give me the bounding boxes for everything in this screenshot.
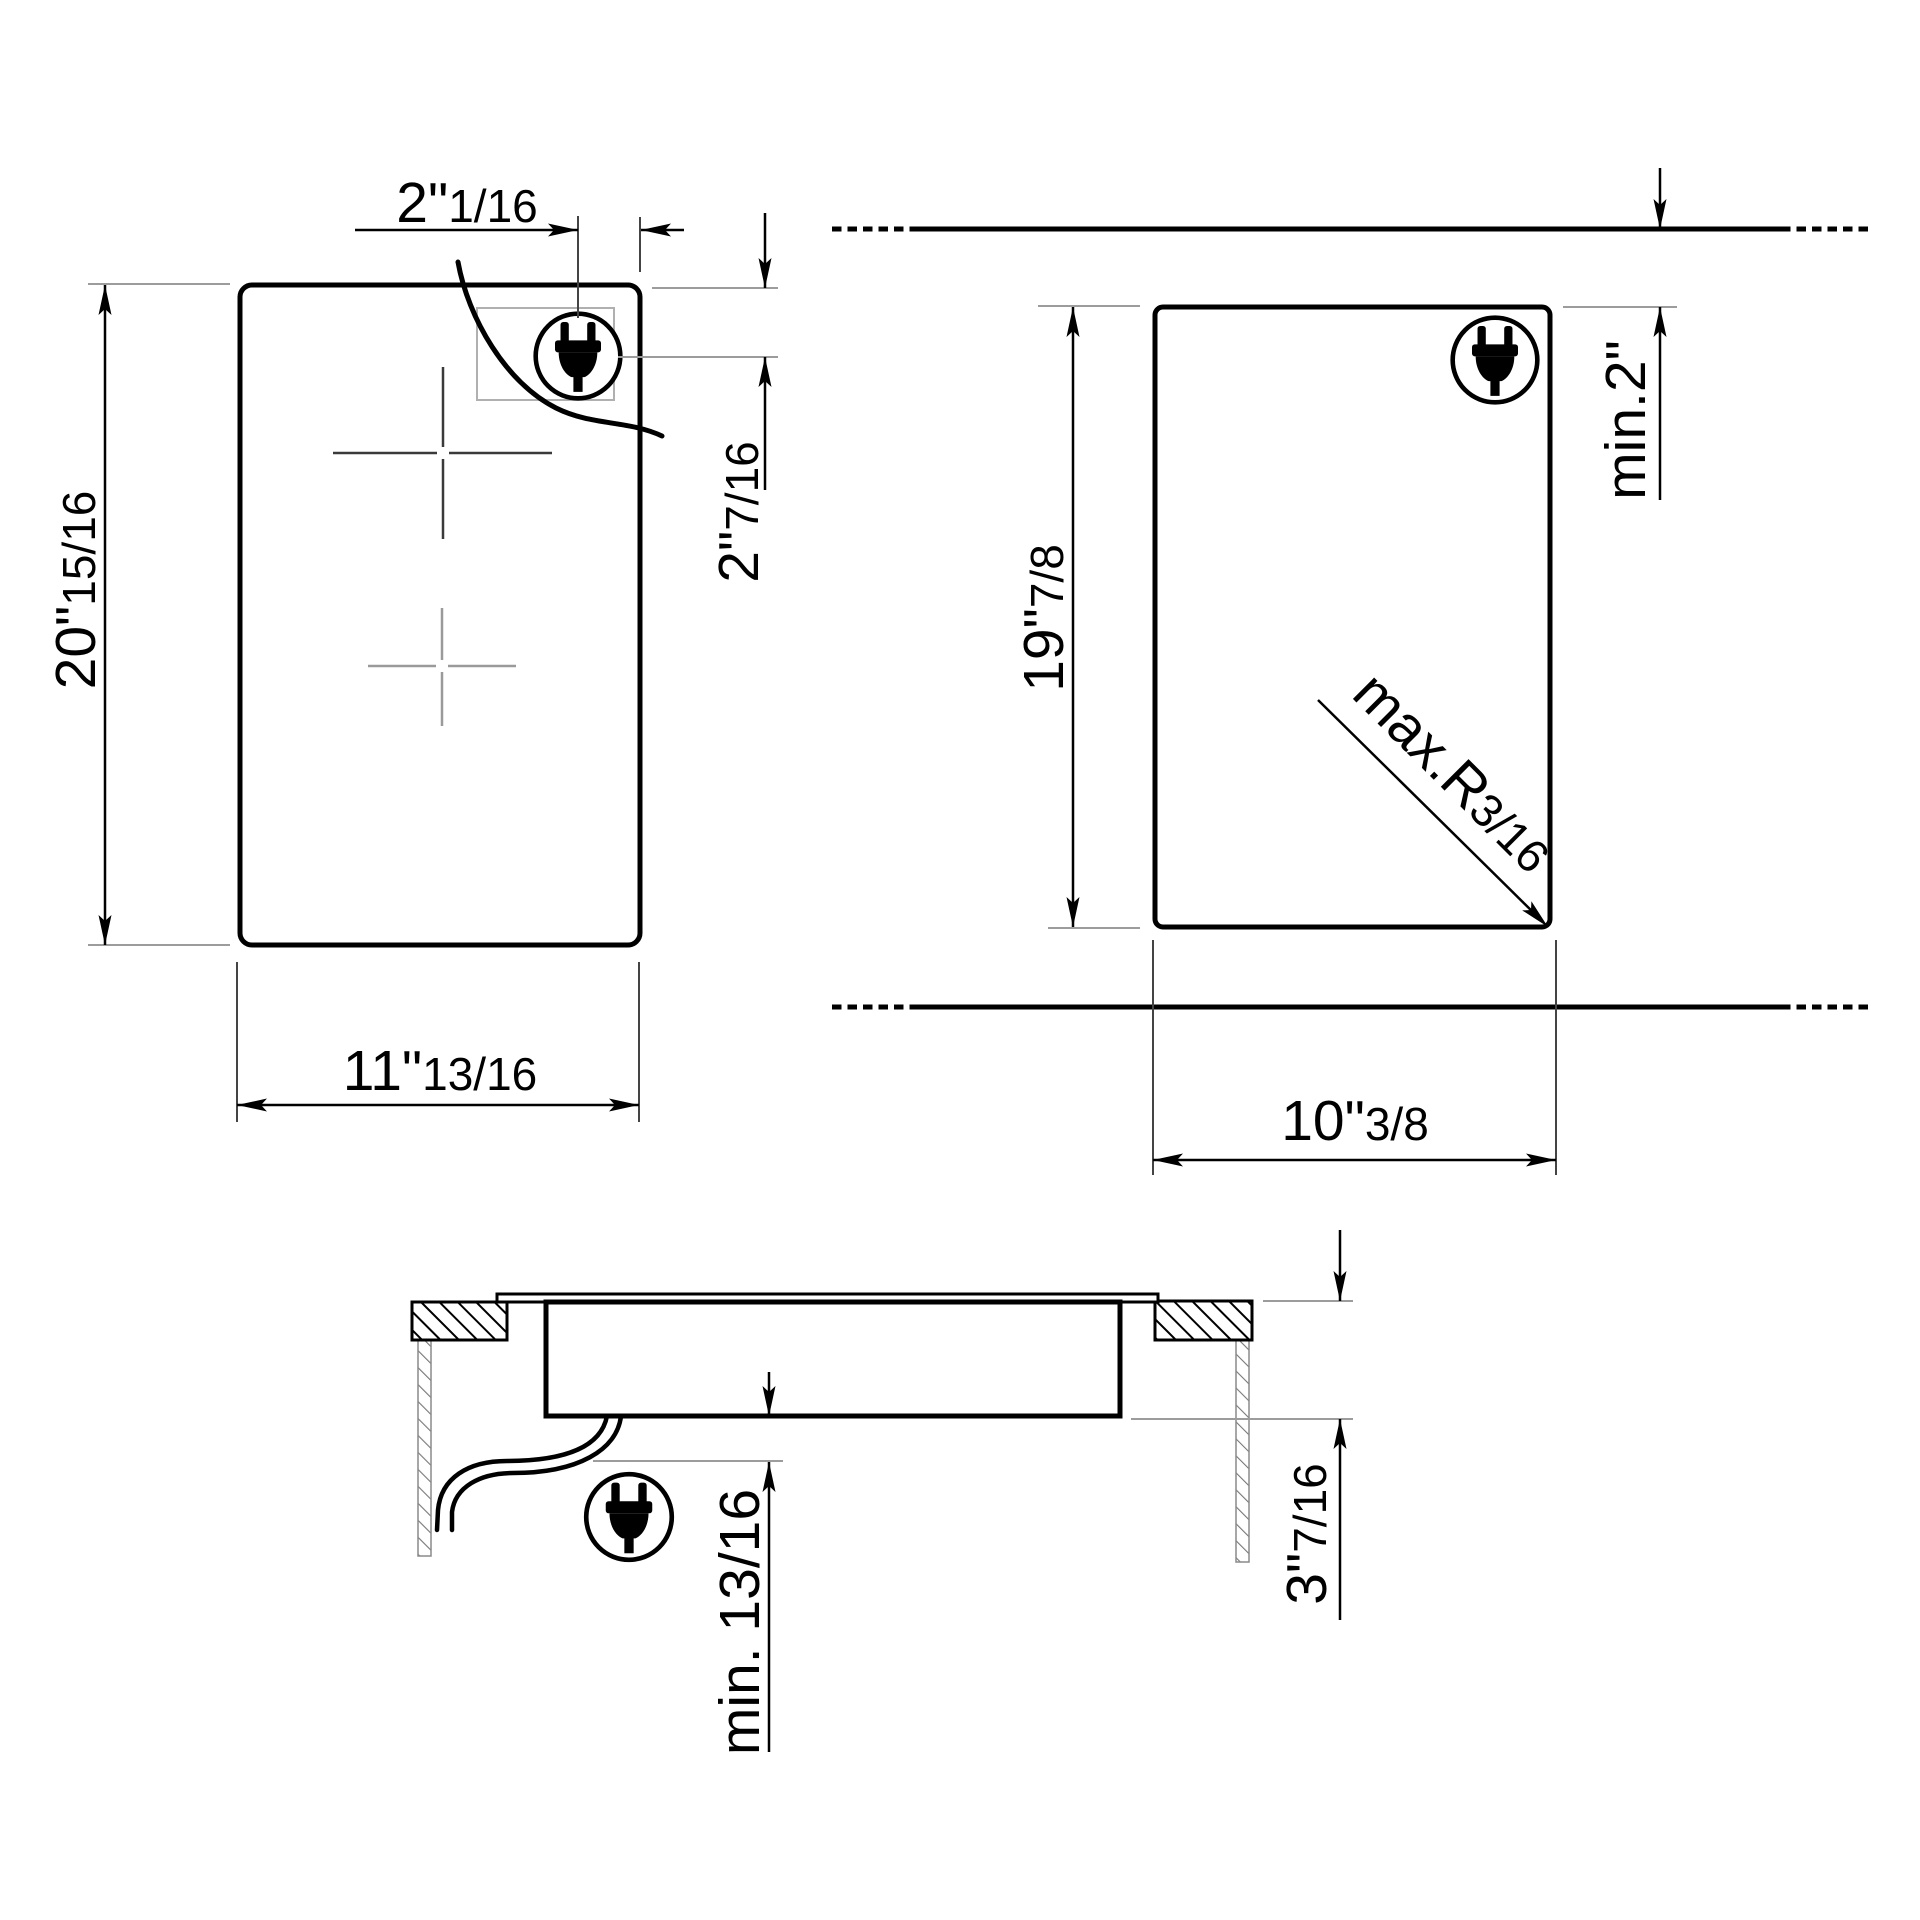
dimension-cutout-width: 10"3/8 [1153,940,1556,1175]
dimension-label-plug-offset-vertical: 2"7/16 [707,441,771,582]
worktop-section-right [1155,1301,1252,1340]
dimension-label-installed-depth: 3"7/16 [1275,1463,1339,1604]
cabinet-panel-left [418,1340,431,1556]
dimension-label-rear-clearance: min.2" [1594,340,1658,500]
dimension-label-plug-offset-horizontal: 2"1/16 [396,171,537,235]
section-view: min. 13/16 3"7/16 [412,1230,1353,1755]
power-plug-icon [536,314,621,399]
worktop-section-left [412,1302,507,1340]
power-plug-icon [586,1474,672,1560]
dimension-label-plan-height: 20"15/16 [44,491,108,690]
dimension-rear-clearance: min.2" [1563,168,1677,500]
dimension-label-cutout-width: 10"3/8 [1281,1089,1429,1153]
dimension-label-plan-width: 11"13/16 [343,1039,538,1103]
dimension-cutout-height: 19"7/8 [1012,306,1140,928]
dimension-plan-width: 11"13/16 [237,962,639,1122]
dimension-plan-height: 20"15/16 [44,284,230,945]
plan-view: 20"15/16 2"1/16 2"7/16 [44,171,778,1122]
cutout-view: 19"7/8 min.2" max.R3/16 10"3/8 [832,168,1873,1175]
dimension-bottom-clearance: min. 13/16 [593,1372,783,1755]
dimension-label-cutout-height: 19"7/8 [1012,544,1076,692]
drawing-svg: 20"15/16 2"1/16 2"7/16 [0,0,1920,1920]
cabinet-panel-right [1236,1340,1249,1562]
technical-drawing: 20"15/16 2"1/16 2"7/16 [0,0,1920,1920]
power-plug-icon [1453,318,1538,403]
dimension-label-bottom-clearance: min. 13/16 [708,1489,772,1755]
hob-body-section [546,1302,1120,1416]
